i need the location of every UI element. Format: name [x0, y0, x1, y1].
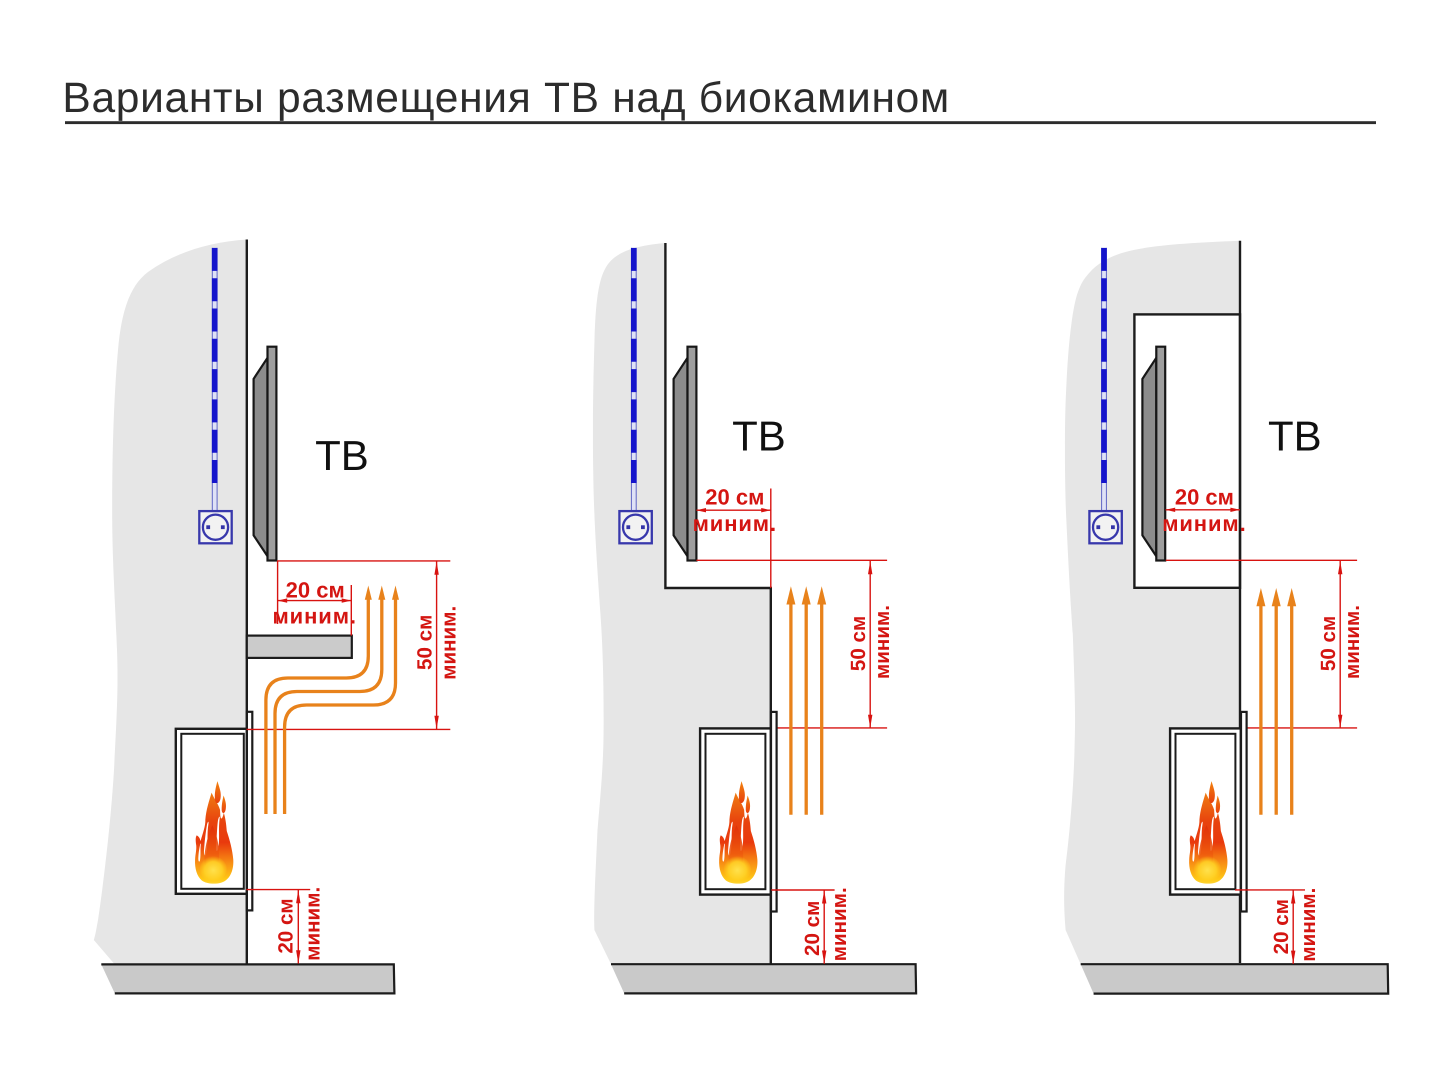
svg-text:миним.: миним.: [1341, 605, 1364, 679]
svg-text:миним.: миним.: [828, 887, 851, 961]
svg-text:миним.: миним.: [871, 605, 894, 679]
svg-text:20 см: 20 см: [286, 577, 345, 602]
svg-text:миним.: миним.: [1297, 888, 1320, 962]
svg-text:миним.: миним.: [302, 887, 325, 961]
svg-text:20 см: 20 см: [275, 898, 298, 953]
svg-text:ТВ: ТВ: [315, 432, 369, 479]
svg-text:20 см: 20 см: [801, 901, 824, 956]
svg-text:ТВ: ТВ: [1268, 413, 1322, 460]
svg-text:ТВ: ТВ: [732, 413, 786, 460]
svg-text:миним.: миним.: [272, 604, 356, 629]
svg-text:миним.: миним.: [1162, 511, 1246, 536]
svg-text:50 см: 50 см: [1317, 616, 1340, 671]
svg-text:Варианты размещения ТВ над био: Варианты размещения ТВ над биокамином: [62, 75, 949, 122]
svg-text:миним.: миним.: [437, 606, 460, 680]
svg-text:50 см: 50 см: [414, 615, 437, 670]
svg-text:50 см: 50 см: [847, 616, 870, 671]
svg-text:20 см: 20 см: [705, 485, 764, 510]
svg-text:20 см: 20 см: [1270, 899, 1293, 954]
svg-text:миним.: миним.: [693, 511, 777, 536]
svg-text:20 см: 20 см: [1175, 485, 1234, 510]
